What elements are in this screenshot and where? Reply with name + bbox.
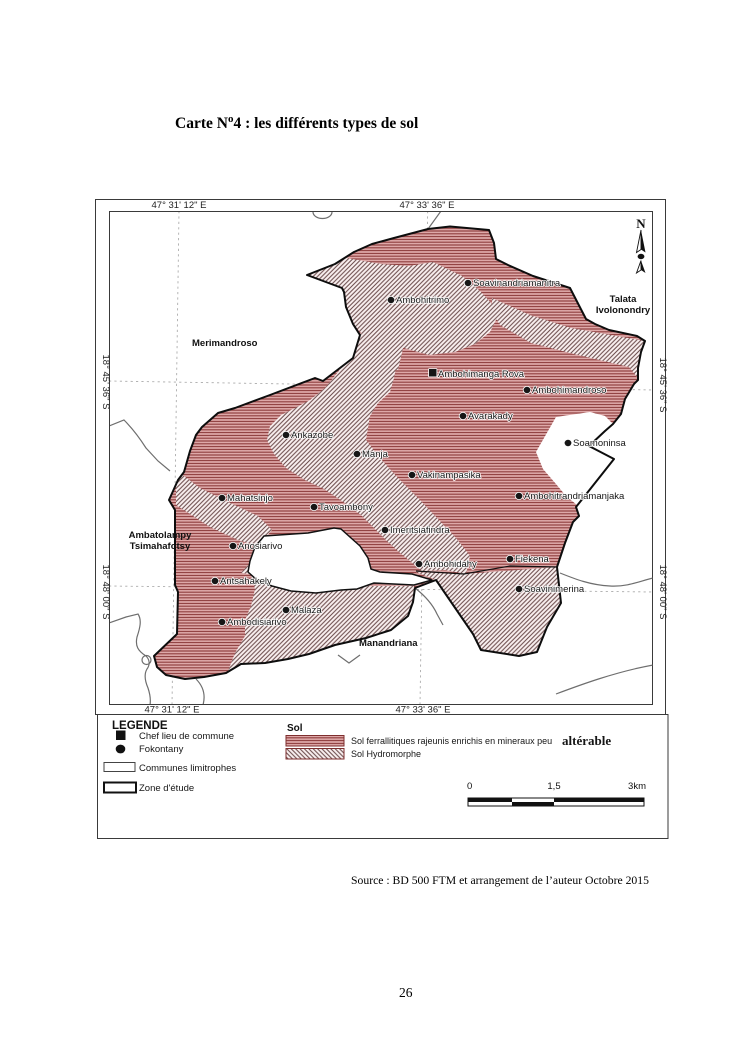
svg-text:Tsimahafotsy: Tsimahafotsy [130,541,191,552]
svg-text:Manja: Manja [362,449,389,460]
svg-text:Ambodisiarivo: Ambodisiarivo [227,617,287,628]
svg-text:Merimandroso: Merimandroso [192,338,258,349]
svg-text:18° 48' 00" S: 18° 48' 00" S [657,565,668,620]
svg-text:Ambohimanga Rova: Ambohimanga Rova [438,369,525,380]
svg-text:Sol Hydromorphe: Sol Hydromorphe [351,749,421,759]
svg-text:Vakinampasika: Vakinampasika [417,470,481,481]
svg-text:Fiekena: Fiekena [515,554,550,565]
svg-text:Ankazobe: Ankazobe [291,430,333,441]
svg-text:Antsahakely: Antsahakely [220,576,272,587]
svg-text:0: 0 [467,781,472,792]
svg-text:Ambohitrandriamanjaka: Ambohitrandriamanjaka [524,491,625,502]
svg-text:47° 33' 36" E: 47° 33' 36" E [400,200,455,211]
svg-text:3km: 3km [628,781,646,792]
svg-text:47° 33' 36" E: 47° 33' 36" E [396,705,451,716]
svg-text:N: N [636,216,646,231]
svg-text:18° 48' 00" S: 18° 48' 00" S [100,565,111,620]
svg-text:18° 45' 36" S: 18° 45' 36" S [100,355,111,410]
svg-text:Tavoambony: Tavoambony [319,502,373,513]
svg-text:18° 45' 36" S: 18° 45' 36" S [657,358,668,413]
svg-text:Soamoninsa: Soamoninsa [573,438,627,449]
svg-text:Anosiarivo: Anosiarivo [238,541,282,552]
svg-text:Manandriana: Manandriana [359,638,418,649]
svg-text:Sol ferrallitiques rajeunis en: Sol ferrallitiques rajeunis enrichis en … [351,736,552,746]
svg-text:1,5: 1,5 [547,781,560,792]
svg-text:Chef lieu de commune: Chef lieu de commune [139,731,234,742]
svg-text:Soavinandriamanitra: Soavinandriamanitra [473,278,561,289]
svg-text:Communes limitrophes: Communes limitrophes [139,763,236,774]
svg-text:Zone d'étude: Zone d'étude [139,783,194,794]
svg-text:47° 31' 12" E: 47° 31' 12" E [152,200,207,211]
svg-text:Ambohidahy: Ambohidahy [424,559,477,570]
svg-text:Soavinimerina: Soavinimerina [524,584,585,595]
svg-text:Malaza: Malaza [291,605,322,616]
svg-text:Fokontany: Fokontany [139,744,184,755]
svg-text:Ambohimandroso: Ambohimandroso [532,385,606,396]
svg-text:Mahatsinjo: Mahatsinjo [227,493,273,504]
svg-text:47° 31' 12" E: 47° 31' 12" E [145,705,200,716]
svg-text:Sol: Sol [287,723,303,734]
svg-text:Avarakady: Avarakady [468,411,513,422]
svg-text:Ivolonondry: Ivolonondry [596,305,651,316]
svg-text:Ambohitrimo: Ambohitrimo [396,295,449,306]
svg-text:altérable: altérable [562,733,611,748]
svg-text:Ambatolampy: Ambatolampy [129,530,193,541]
svg-text:Imeritsiafindra: Imeritsiafindra [390,525,450,536]
svg-text:Talata: Talata [610,294,637,305]
